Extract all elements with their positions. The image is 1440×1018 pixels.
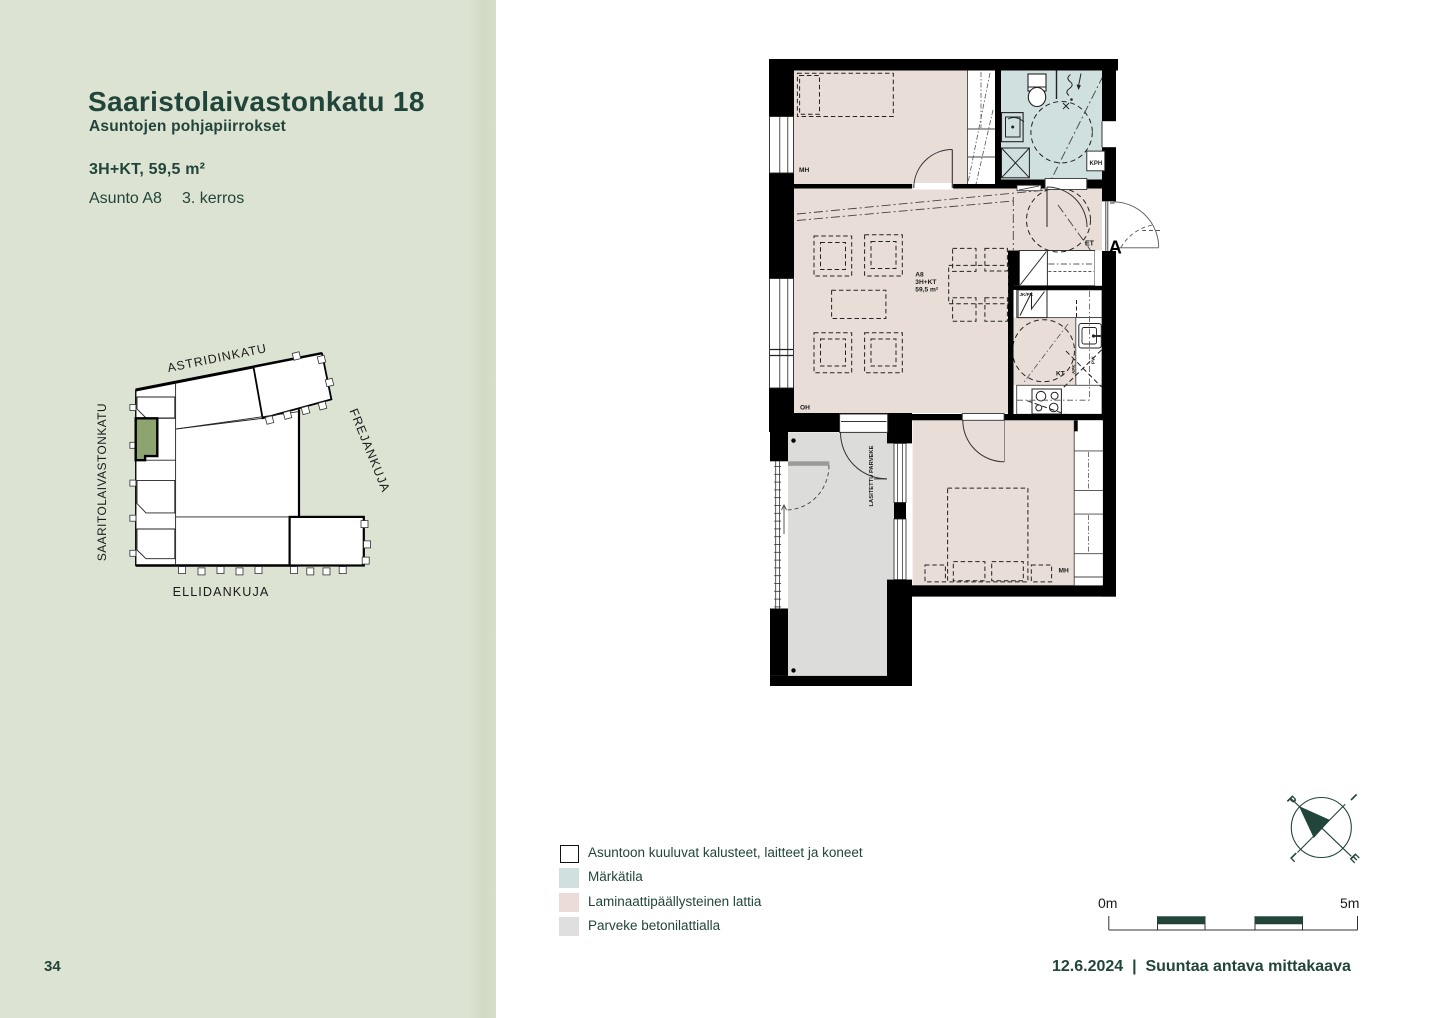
svg-text:MH: MH [799, 167, 809, 174]
svg-text:SAARITOLAIVASTONKATU: SAARITOLAIVASTONKATU [95, 403, 109, 561]
svg-text:PW: PW [1091, 356, 1096, 364]
svg-text:APK: APK [1071, 364, 1076, 374]
svg-text:0m: 0m [1098, 895, 1117, 911]
svg-text:59,5 m²: 59,5 m² [915, 287, 939, 294]
svg-text:A8: A8 [915, 271, 924, 278]
svg-text:FREJANKUJA: FREJANKUJA [346, 406, 392, 494]
svg-text:3H+KT: 3H+KT [915, 279, 936, 286]
svg-text:ELLIDANKUJA: ELLIDANKUJA [173, 585, 270, 599]
svg-text:5m: 5m [1340, 895, 1359, 911]
svg-text:I: I [1348, 793, 1359, 804]
svg-text:A: A [1109, 237, 1122, 258]
svg-text:KT: KT [1056, 371, 1065, 378]
svg-text:MH: MH [1059, 568, 1069, 575]
svg-text:P: P [1284, 794, 1298, 808]
svg-text:KPH: KPH [1090, 161, 1103, 167]
svg-text:L: L [1287, 851, 1300, 864]
svg-text:ET: ET [1085, 241, 1095, 248]
svg-text:JK/PK: JK/PK [1020, 292, 1034, 297]
svg-text:OH: OH [800, 405, 810, 412]
